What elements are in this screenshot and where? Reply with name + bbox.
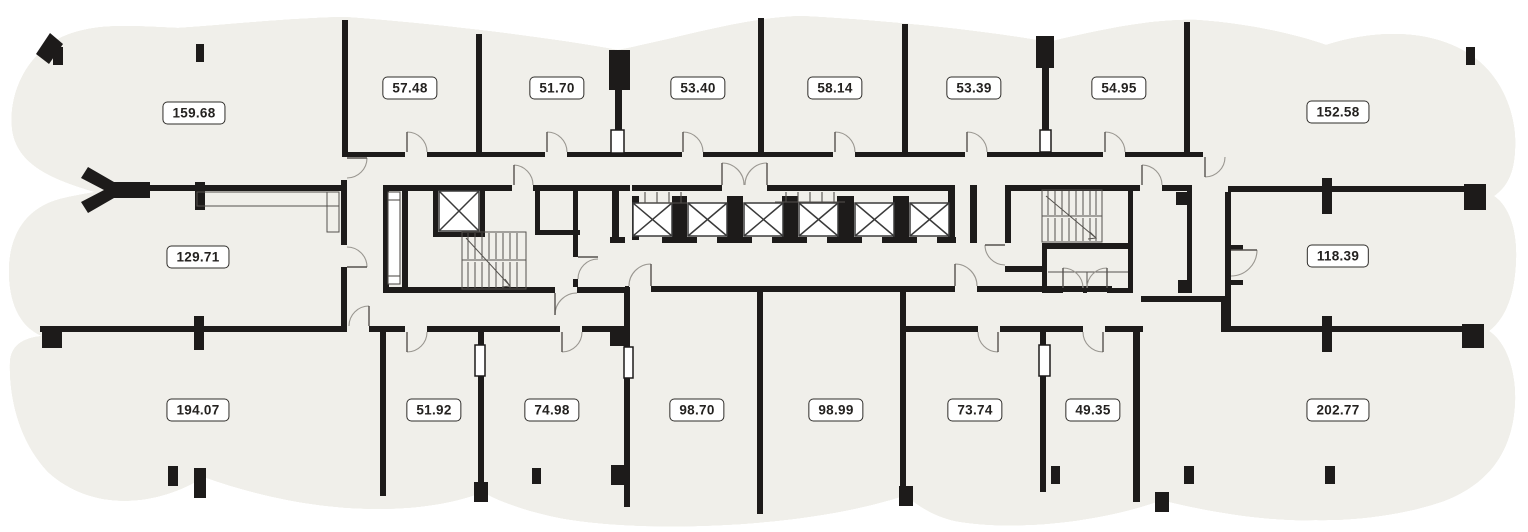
room-area-label: 51.70 [529, 77, 584, 100]
room-area-label: 53.39 [946, 77, 1001, 100]
floor-plan-canvas: Group [0, 0, 1528, 532]
room-area-label: 54.95 [1091, 77, 1146, 100]
room-area-label: 57.48 [382, 77, 437, 100]
elevator-icon [855, 203, 894, 236]
room-area-label: 53.40 [670, 77, 725, 100]
elevator-icon [910, 203, 949, 236]
room-area-label: 73.74 [947, 399, 1002, 422]
elevator-icon [439, 191, 479, 231]
room-area-label: 202.77 [1306, 399, 1369, 422]
floor-plan-drawing: Group [0, 0, 1528, 532]
room-area-label: 74.98 [524, 399, 579, 422]
room-area-label: 118.39 [1307, 245, 1369, 268]
elevator-icon [799, 203, 838, 236]
room-area-label: 58.14 [807, 77, 862, 100]
room-area-label: 129.71 [166, 246, 229, 269]
room-area-label: 98.99 [808, 399, 863, 422]
room-area-label: 98.70 [669, 399, 724, 422]
room-area-label: 152.58 [1306, 101, 1369, 124]
room-area-label: 51.92 [406, 399, 461, 422]
elevator-icon [744, 203, 783, 236]
elevator-icon [688, 203, 727, 236]
room-area-label: 49.35 [1065, 399, 1120, 422]
room-area-label: 159.68 [162, 102, 225, 125]
room-area-label: 194.07 [166, 399, 229, 422]
elevator-icon [633, 203, 672, 236]
